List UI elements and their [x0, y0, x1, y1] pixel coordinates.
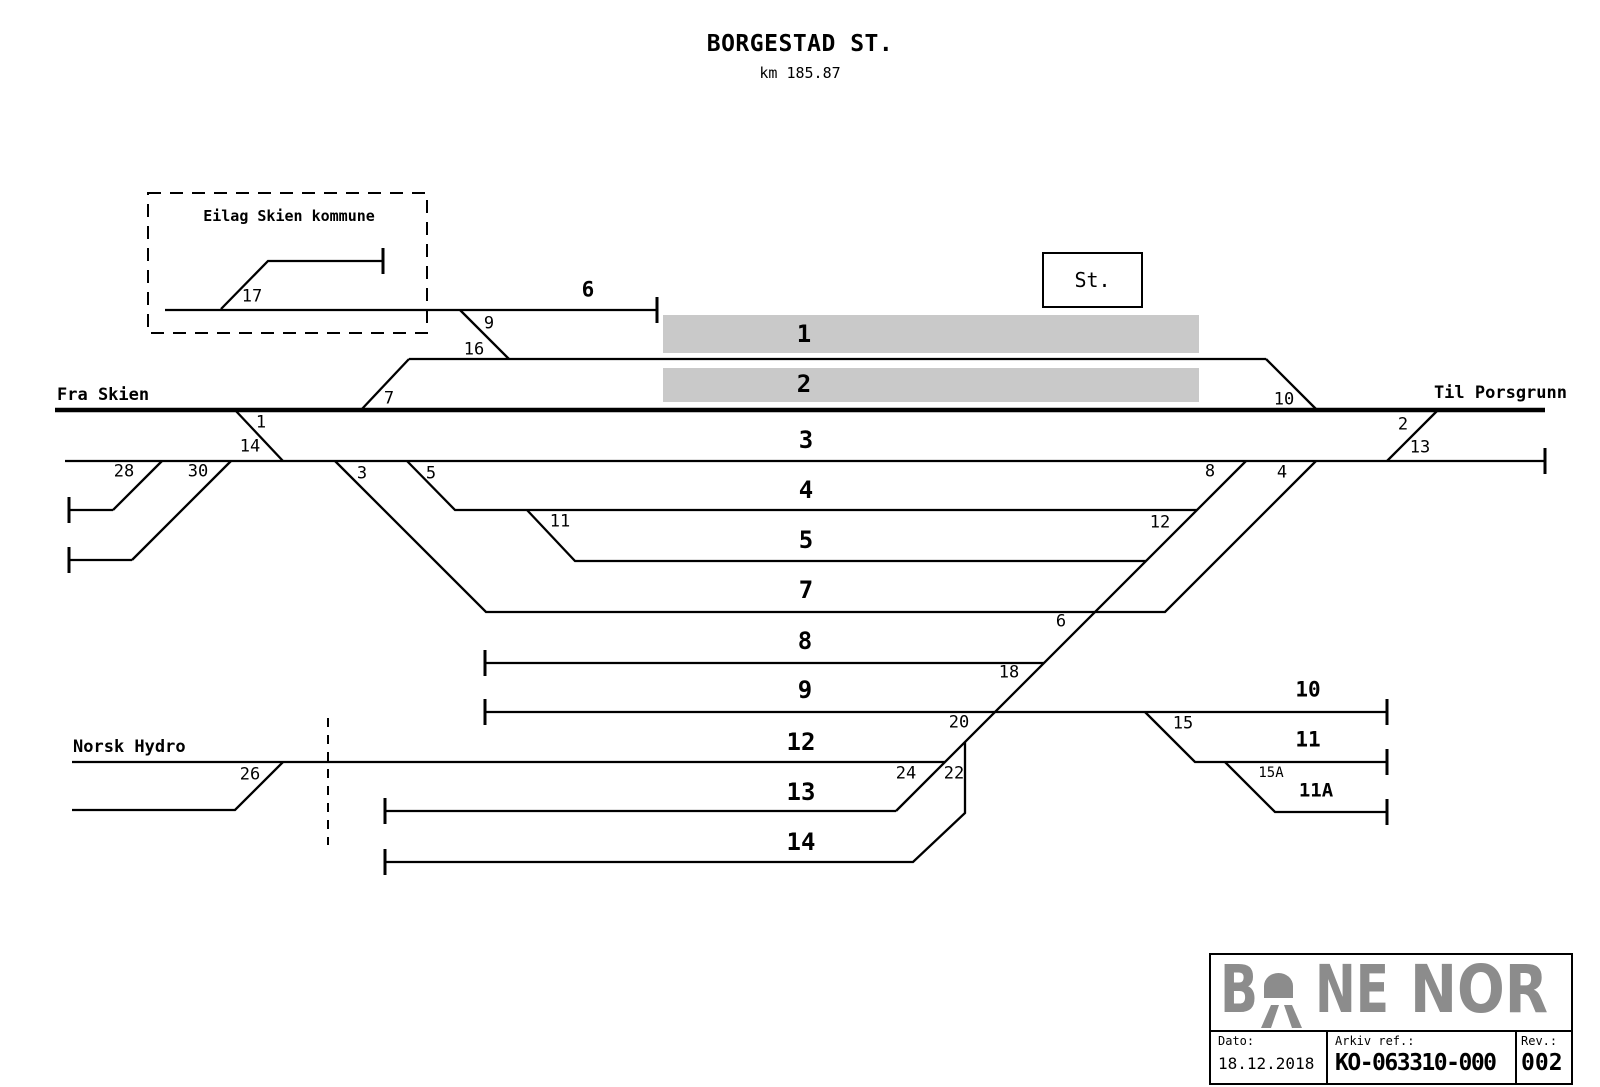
track-label-12: 12 [787, 730, 816, 754]
station-building-label: St. [1074, 268, 1110, 292]
switch-label-8: 8 [1205, 464, 1215, 481]
track-label-1: 1 [797, 322, 811, 346]
switch-label-28: 28 [114, 464, 134, 481]
track-label-3: 3 [799, 428, 813, 452]
track-7-line [335, 461, 1316, 612]
switch-label-18: 18 [999, 665, 1019, 682]
track-14-line [385, 742, 965, 862]
direction-label-til-porsgrunn: Til Porsgrunn [1434, 385, 1567, 402]
track-label-7: 7 [799, 578, 813, 602]
switch-label-3: 3 [357, 466, 367, 483]
long-diagonal-20-18-6 [896, 461, 1246, 811]
switch-label-15: 15 [1173, 716, 1193, 733]
page-title: BORGESTAD ST. [0, 31, 1600, 57]
track-label-9: 9 [798, 678, 812, 702]
enclosure-label: Eilag Skien kommune [203, 207, 375, 225]
switch-label-11: 11 [550, 514, 570, 531]
switch-label-26: 26 [240, 767, 260, 784]
switch-label-15A: 15A [1258, 766, 1283, 780]
track-label-10: 10 [1295, 680, 1320, 701]
logo-letters-nor: NOR [1410, 955, 1548, 1028]
archive-ref-cell: Arkiv ref.: KO-063310-000 [1328, 1032, 1517, 1083]
track-label-6: 6 [582, 280, 595, 301]
switch-label-24: 24 [896, 766, 916, 783]
track-label-4: 4 [799, 478, 813, 502]
track-label-8: 8 [798, 629, 812, 653]
track-label-14: 14 [787, 830, 816, 854]
bane-nor-logo: B NE NOR [1211, 955, 1571, 1032]
track-label-2: 2 [797, 372, 811, 396]
switch-label-20: 20 [949, 715, 969, 732]
direction-label-fra-skien: Fra Skien [57, 387, 149, 404]
switch-label-5: 5 [426, 466, 436, 483]
switch-label-9: 9 [484, 316, 494, 333]
bane-nor-logo-svg: B NE NOR [1211, 955, 1571, 1030]
revision-label: Rev.: [1521, 1035, 1571, 1048]
switch-label-1: 1 [256, 415, 266, 432]
switch-label-16: 16 [464, 342, 484, 359]
logo-letter-b: B [1220, 955, 1258, 1028]
platform-track-2 [663, 368, 1199, 402]
switch-label-12: 12 [1150, 515, 1170, 532]
date-value: 18.12.2018 [1218, 1054, 1326, 1073]
revision-cell: Rev.: 002 [1517, 1032, 1571, 1083]
platform-track-1 [663, 315, 1199, 353]
switch-label-22: 22 [944, 766, 964, 783]
switch-label-10: 10 [1274, 392, 1294, 409]
title-block: B NE NOR Dato: 18.12.2018 Arkiv ref.: KO… [1209, 953, 1573, 1085]
switch-label-7: 7 [384, 391, 394, 408]
switch-label-2: 2 [1398, 417, 1408, 434]
km-position: km 185.87 [0, 64, 1600, 82]
track-5-line [527, 510, 1146, 561]
track-label-11: 11 [1295, 730, 1320, 751]
track-diagram-page: BORGESTAD ST. km 185.87 Fra Skien Til Po… [0, 0, 1600, 1087]
station-building-box: St. [1042, 252, 1143, 308]
archive-ref-label: Arkiv ref.: [1335, 1035, 1515, 1048]
track-label-11A: 11A [1299, 782, 1333, 801]
switch-label-6: 6 [1056, 614, 1066, 631]
title-block-info-row: Dato: 18.12.2018 Arkiv ref.: KO-063310-0… [1211, 1032, 1571, 1083]
date-label: Dato: [1218, 1035, 1326, 1048]
revision-value: 002 [1521, 1050, 1571, 1076]
date-cell: Dato: 18.12.2018 [1211, 1032, 1328, 1083]
switch-label-17: 17 [242, 289, 262, 306]
logo-letters-ne: NE [1315, 955, 1389, 1028]
switch-label-13: 13 [1410, 440, 1430, 457]
archive-ref-value: KO-063310-000 [1335, 1050, 1515, 1076]
switch-label-30: 30 [188, 464, 208, 481]
track-label-13: 13 [787, 780, 816, 804]
logo-a-symbol [1261, 973, 1302, 1028]
siding-owner-label-norsk-hydro: Norsk Hydro [73, 739, 186, 756]
switch-label-4: 4 [1277, 465, 1287, 482]
track-label-5: 5 [799, 528, 813, 552]
switch-label-14: 14 [240, 439, 260, 456]
